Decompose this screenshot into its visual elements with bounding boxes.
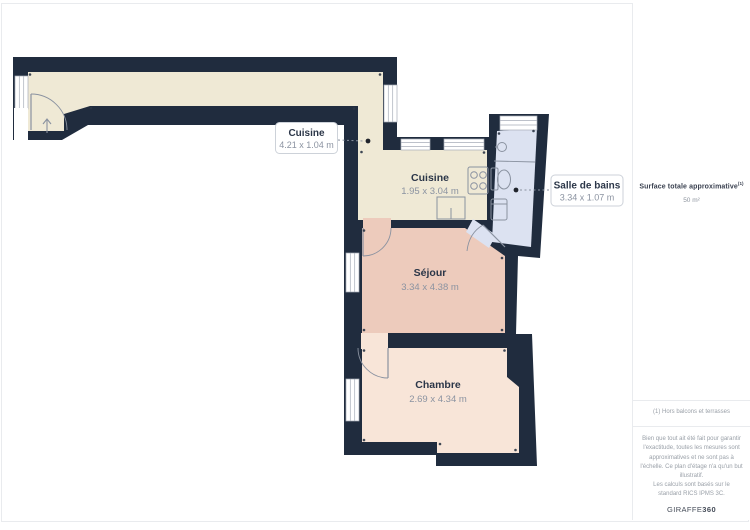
room-label-chambre-name: Chambre: [415, 379, 461, 391]
surface-total-title: Surface totale approximative(1): [633, 181, 750, 190]
room-label-kitchen-dims: 1.95 x 3.04 m: [401, 186, 459, 197]
surface-total-title-text: Surface totale approximative: [639, 183, 738, 190]
brand-name: GIRAFFE: [667, 505, 702, 514]
brand-suffix: 360: [702, 505, 716, 514]
footnote-balconies: (1) Hors balcons et terrasses: [633, 409, 750, 415]
floorplan-svg: Cuisine 4.21 x 1.04 m Cuisine 1.95 x 3.0…: [0, 0, 632, 530]
surface-title-superscript: (1): [738, 181, 744, 186]
floorplan-page: Cuisine 4.21 x 1.04 m Cuisine 1.95 x 3.0…: [0, 0, 750, 530]
leader-dot: [514, 188, 519, 193]
window-bathroom-top: [500, 116, 537, 130]
info-sidebar: Surface totale approximative(1) 50 m² (1…: [632, 3, 750, 520]
room-label-bathroom-name: Salle de bains: [554, 181, 621, 192]
giraffe360-logo: GIRAFFE360: [633, 505, 750, 514]
sidebar-divider: [633, 426, 750, 427]
room-label-kitchen-name: Cuisine: [411, 172, 449, 184]
door-opening: [361, 333, 388, 349]
window-chambre-left: [346, 379, 359, 421]
window-corridor-right: [384, 85, 397, 122]
surface-total-value: 50 m²: [633, 197, 750, 204]
room-label-chambre-dims: 2.69 x 4.34 m: [409, 394, 467, 405]
leader-dot: [366, 139, 371, 144]
room-label-sejour-dims: 3.34 x 4.38 m: [401, 282, 459, 293]
bathroom-floor: [492, 128, 537, 247]
window-kitchen-top-2: [444, 139, 484, 150]
window-kitchen-top-1: [401, 139, 430, 150]
window-corridor-left: [15, 76, 28, 109]
room-label-corridor-dims: 4.21 x 1.04 m: [279, 140, 334, 150]
room-label-corridor-name: Cuisine: [288, 128, 325, 139]
disclaimer-text: Bien que tout ait été fait pour garantir…: [633, 435, 750, 481]
room-label-sejour-name: Séjour: [414, 267, 447, 279]
sidebar-divider: [633, 400, 750, 401]
entrance-opening: [14, 108, 28, 140]
door-opening: [363, 218, 391, 229]
room-label-bathroom-dims: 3.34 x 1.07 m: [560, 193, 615, 203]
standard-text: Les calculs sont basés sur le standard R…: [633, 481, 750, 500]
window-sejour-left: [346, 253, 359, 292]
